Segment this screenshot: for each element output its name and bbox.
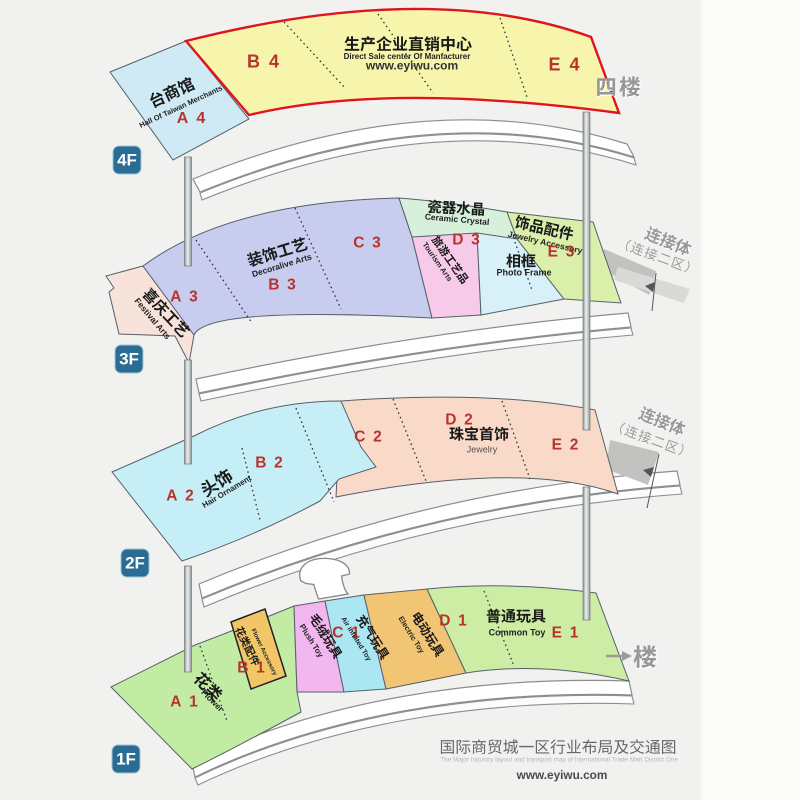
svg-text:Photo Frame: Photo Frame (496, 267, 551, 277)
svg-text:C 2: C 2 (354, 429, 382, 446)
svg-text:1F: 1F (116, 749, 136, 768)
svg-text:Jewelry: Jewelry (467, 444, 498, 454)
svg-text:A 3: A 3 (170, 289, 198, 306)
svg-text:A 1: A 1 (170, 694, 198, 711)
svg-text:E 4: E 4 (548, 55, 579, 75)
svg-text:B 2: B 2 (255, 455, 283, 472)
svg-text:E 2: E 2 (552, 437, 579, 454)
svg-text:A 4: A 4 (177, 110, 206, 127)
svg-text:D 2: D 2 (445, 412, 473, 429)
svg-text:2F: 2F (125, 553, 145, 572)
svg-text:D 3: D 3 (452, 232, 480, 249)
svg-text:B 1: B 1 (237, 660, 265, 677)
svg-text:The Major Industry layout and: The Major Industry layout and transport … (440, 757, 678, 764)
svg-text:E 3: E 3 (548, 244, 575, 261)
svg-text:E 1: E 1 (552, 625, 579, 642)
svg-text:www.eyiwu.com: www.eyiwu.com (516, 768, 608, 782)
svg-text:www.eyiwu.com: www.eyiwu.com (365, 59, 458, 73)
svg-text:3F: 3F (119, 349, 139, 368)
svg-text:B 4: B 4 (247, 52, 279, 72)
svg-text:B 3: B 3 (268, 277, 296, 294)
svg-text:4F: 4F (117, 150, 137, 169)
svg-text:C 3: C 3 (353, 235, 381, 252)
svg-text:Common Toy: Common Toy (489, 627, 546, 637)
svg-text:A 2: A 2 (166, 488, 194, 505)
svg-text:D 1: D 1 (439, 613, 467, 630)
